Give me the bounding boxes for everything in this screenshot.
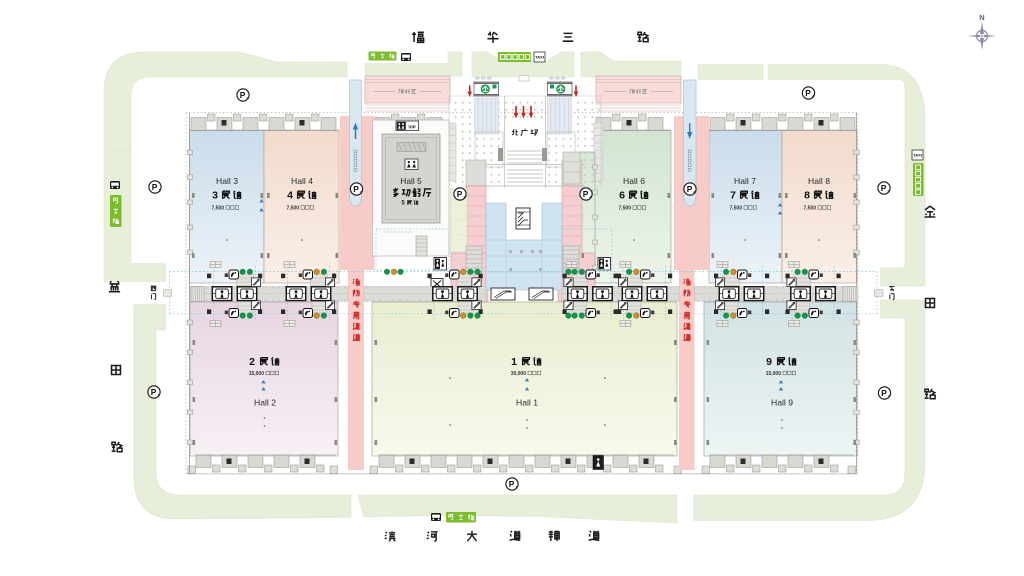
svg-text:7,500: 7,500 — [211, 205, 224, 211]
svg-text:P: P — [805, 88, 811, 98]
svg-text:P: P — [457, 189, 463, 199]
svg-text:TAXI: TAXI — [913, 153, 922, 158]
svg-text:Hall 6: Hall 6 — [623, 176, 645, 186]
svg-text:N: N — [979, 13, 984, 22]
svg-text:Hall 9: Hall 9 — [771, 398, 793, 408]
svg-text:P: P — [881, 388, 887, 398]
svg-text:1: 1 — [511, 356, 517, 368]
svg-text:4: 4 — [287, 190, 293, 202]
svg-text:6: 6 — [619, 190, 625, 202]
svg-text:9: 9 — [766, 356, 772, 368]
svg-text:30,000: 30,000 — [511, 371, 527, 377]
svg-text:Hall 7: Hall 7 — [734, 176, 756, 186]
svg-text:P: P — [881, 183, 887, 193]
svg-text:Hall 5: Hall 5 — [400, 176, 422, 186]
svg-text:Hall 1: Hall 1 — [516, 398, 538, 408]
svg-text:7,500: 7,500 — [618, 205, 631, 211]
svg-text:VIP: VIP — [408, 124, 415, 129]
svg-text:Hall 2: Hall 2 — [254, 398, 276, 408]
svg-text:P: P — [687, 184, 693, 194]
svg-text:7,500: 7,500 — [803, 205, 816, 211]
svg-text:Hall 4: Hall 4 — [291, 176, 313, 186]
svg-text:7: 7 — [730, 190, 736, 202]
svg-text:P: P — [353, 184, 359, 194]
svg-text:P: P — [509, 479, 515, 489]
svg-text:2: 2 — [249, 356, 255, 368]
svg-text:P: P — [240, 90, 246, 100]
svg-text:7,500: 7,500 — [729, 205, 742, 211]
svg-text:TAXI: TAXI — [535, 55, 544, 60]
svg-text:Hall 8: Hall 8 — [808, 176, 830, 186]
svg-text:3: 3 — [212, 190, 218, 202]
svg-text:15,000: 15,000 — [249, 371, 265, 377]
svg-text:P: P — [151, 387, 157, 397]
svg-text:7,500: 7,500 — [286, 205, 299, 211]
svg-text:15,000: 15,000 — [766, 371, 782, 377]
svg-text:8: 8 — [804, 190, 810, 202]
svg-text:Hall 3: Hall 3 — [216, 176, 238, 186]
svg-text:P: P — [152, 182, 158, 192]
svg-text:P: P — [583, 189, 589, 199]
